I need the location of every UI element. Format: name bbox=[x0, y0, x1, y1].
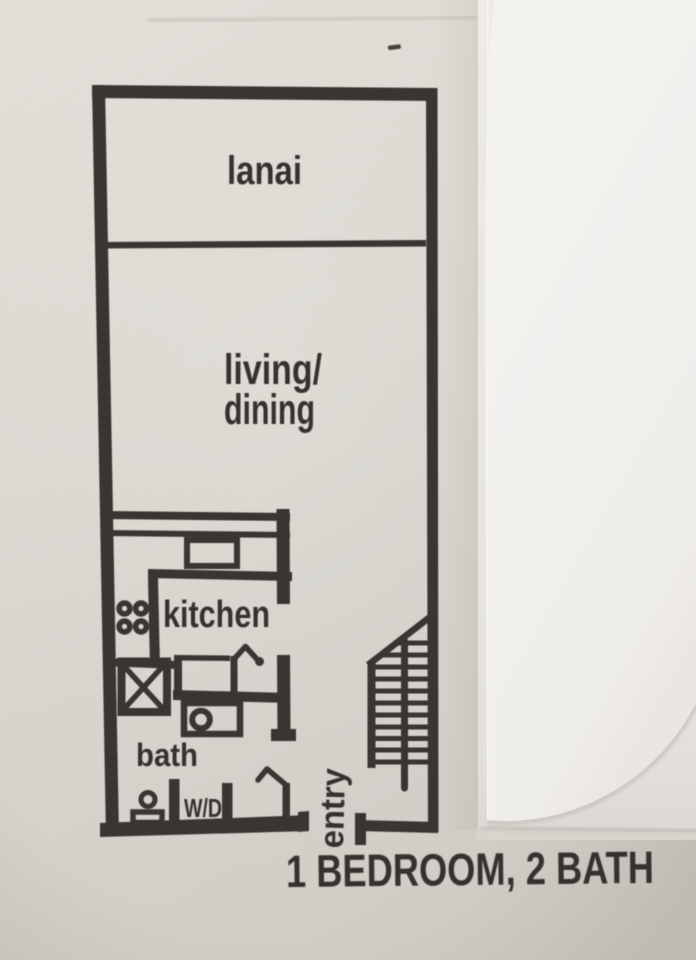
svg-text:dining: dining bbox=[224, 386, 315, 434]
svg-text:W/D: W/D bbox=[184, 793, 222, 823]
svg-text:bath: bath bbox=[136, 737, 198, 773]
svg-text:entry: entry bbox=[313, 768, 353, 849]
svg-text:lanai: lanai bbox=[227, 149, 302, 193]
svg-text:kitchen: kitchen bbox=[163, 594, 270, 636]
svg-text:1 BEDROOM, 2 BATH: 1 BEDROOM, 2 BATH bbox=[286, 842, 655, 897]
